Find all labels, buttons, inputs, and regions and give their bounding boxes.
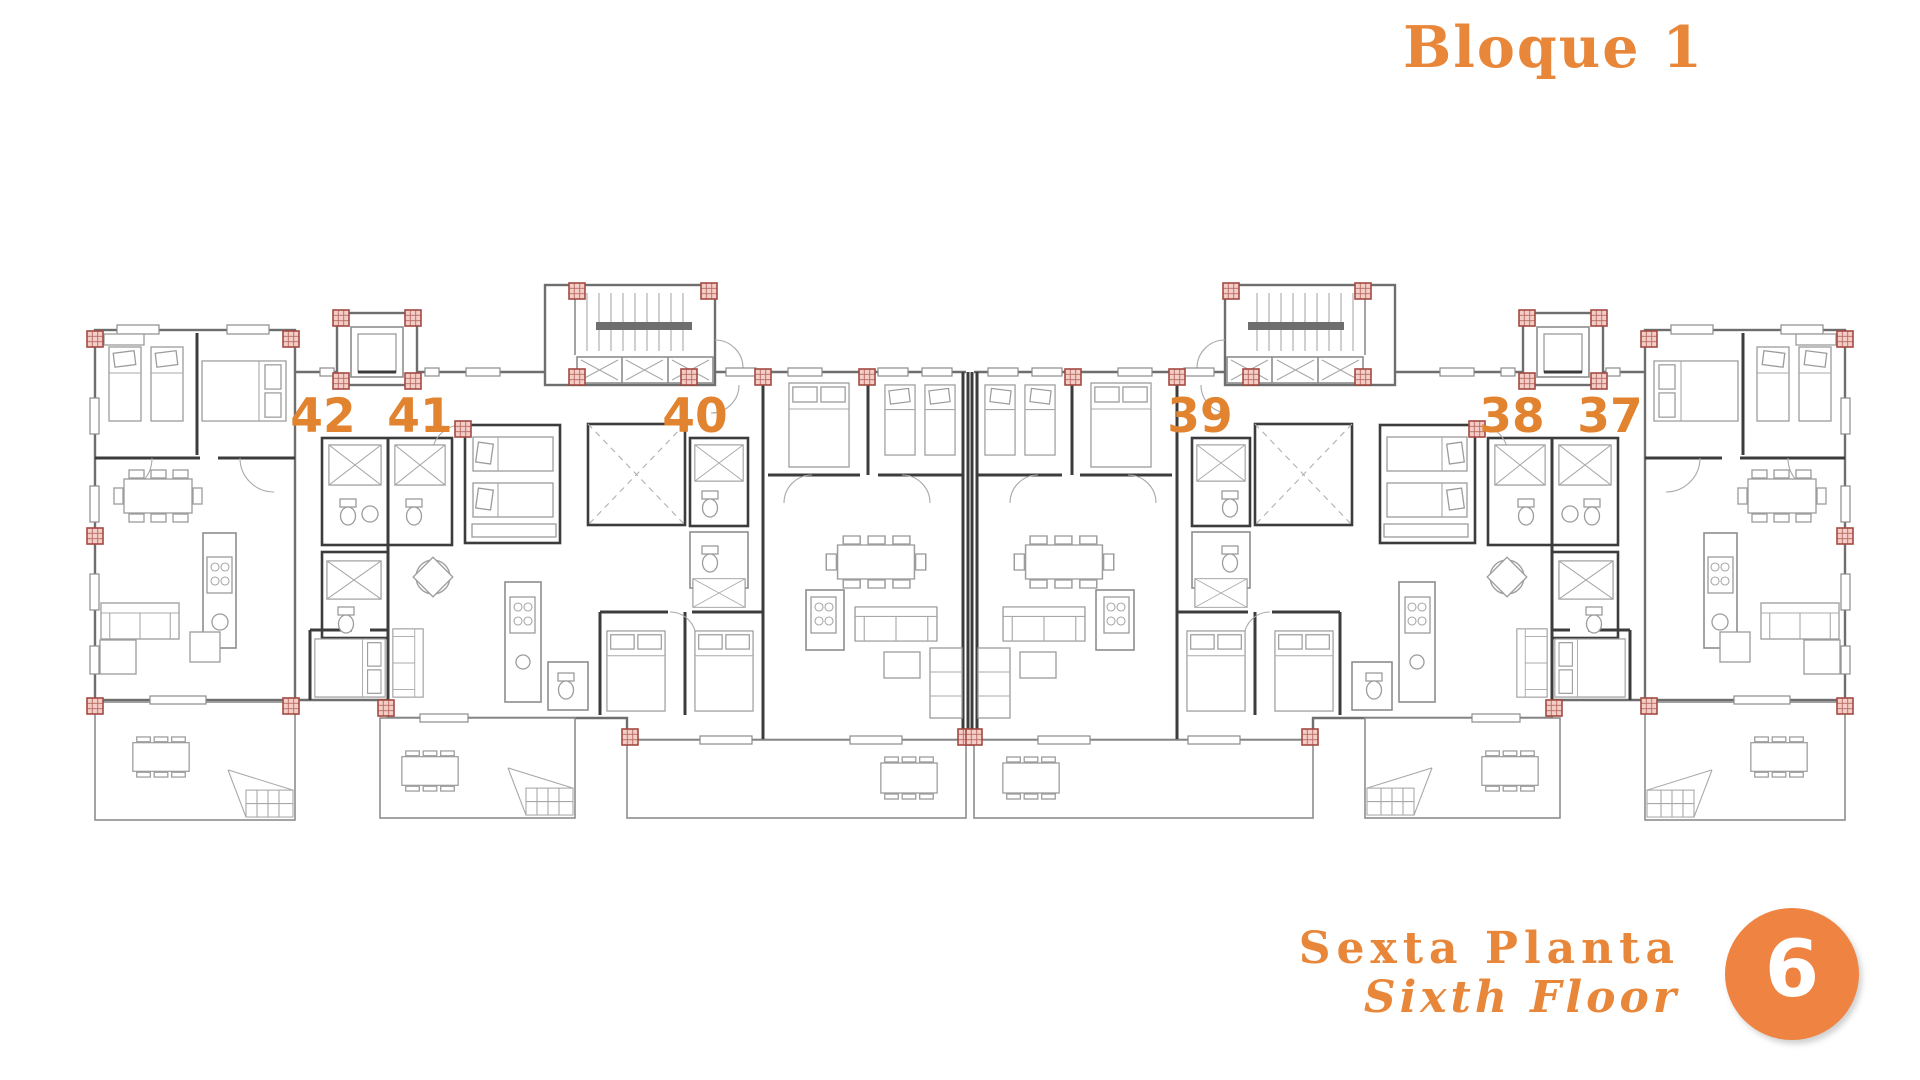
- bed-icon: [109, 347, 141, 421]
- terrace-table-icon: [402, 751, 458, 791]
- floor-name-english: Sixth Floor: [1299, 973, 1680, 1022]
- toilet-icon: [702, 546, 718, 572]
- bed-icon: [473, 437, 553, 471]
- toilet-icon: [406, 499, 422, 525]
- bed-icon: [925, 385, 955, 455]
- bed-icon: [885, 385, 915, 455]
- sofa-icon: [101, 603, 179, 639]
- bed-icon: [473, 483, 553, 517]
- toilet-icon: [340, 499, 356, 525]
- unit-number-42: 42: [290, 389, 355, 444]
- bed-icon: [202, 361, 286, 421]
- floor-caption: Sexta Planta Sixth Floor: [1299, 924, 1680, 1023]
- toilet-icon: [338, 607, 354, 633]
- furniture: [100, 334, 962, 718]
- floor-plan-page: Bloque 1: [0, 0, 1920, 1080]
- terrace-table-icon: [881, 757, 937, 799]
- unit-number-41: 41: [387, 389, 452, 444]
- hob-icon: [510, 597, 535, 633]
- floor-number: 6: [1765, 925, 1819, 1015]
- hob-icon: [811, 597, 836, 633]
- unit-number-40: 40: [662, 389, 727, 444]
- building-right-half: [966, 283, 1853, 820]
- dining-table-icon: [114, 470, 202, 522]
- shower-icon: [327, 561, 381, 599]
- unit-number-37: 37: [1577, 389, 1642, 444]
- shower-icon: [395, 445, 445, 485]
- hob-icon: [207, 557, 232, 593]
- terraces: [95, 702, 966, 820]
- sofa-icon: [855, 607, 937, 641]
- terrace-table-icon: [133, 737, 189, 777]
- bed-icon: [607, 631, 665, 711]
- dining-table-icon: [826, 536, 925, 588]
- shower-icon: [329, 445, 381, 485]
- shower-icon: [695, 445, 743, 481]
- sofa-icon: [393, 629, 423, 697]
- shower-icon: [693, 579, 745, 608]
- floor-number-badge: 6: [1725, 908, 1859, 1040]
- unit-number-38: 38: [1479, 389, 1544, 444]
- building-left-half: [87, 283, 974, 820]
- bed-icon: [151, 347, 183, 421]
- bed-icon: [315, 639, 385, 697]
- floor-name-spanish: Sexta Planta: [1299, 924, 1680, 973]
- unit-number-39: 39: [1167, 389, 1232, 444]
- floor-plan-drawing: 42 41 40 39 38 37: [0, 0, 1920, 1080]
- toilet-icon: [702, 491, 718, 517]
- bed-icon: [695, 631, 753, 711]
- bed-icon: [789, 383, 849, 467]
- toilet-icon: [558, 673, 574, 699]
